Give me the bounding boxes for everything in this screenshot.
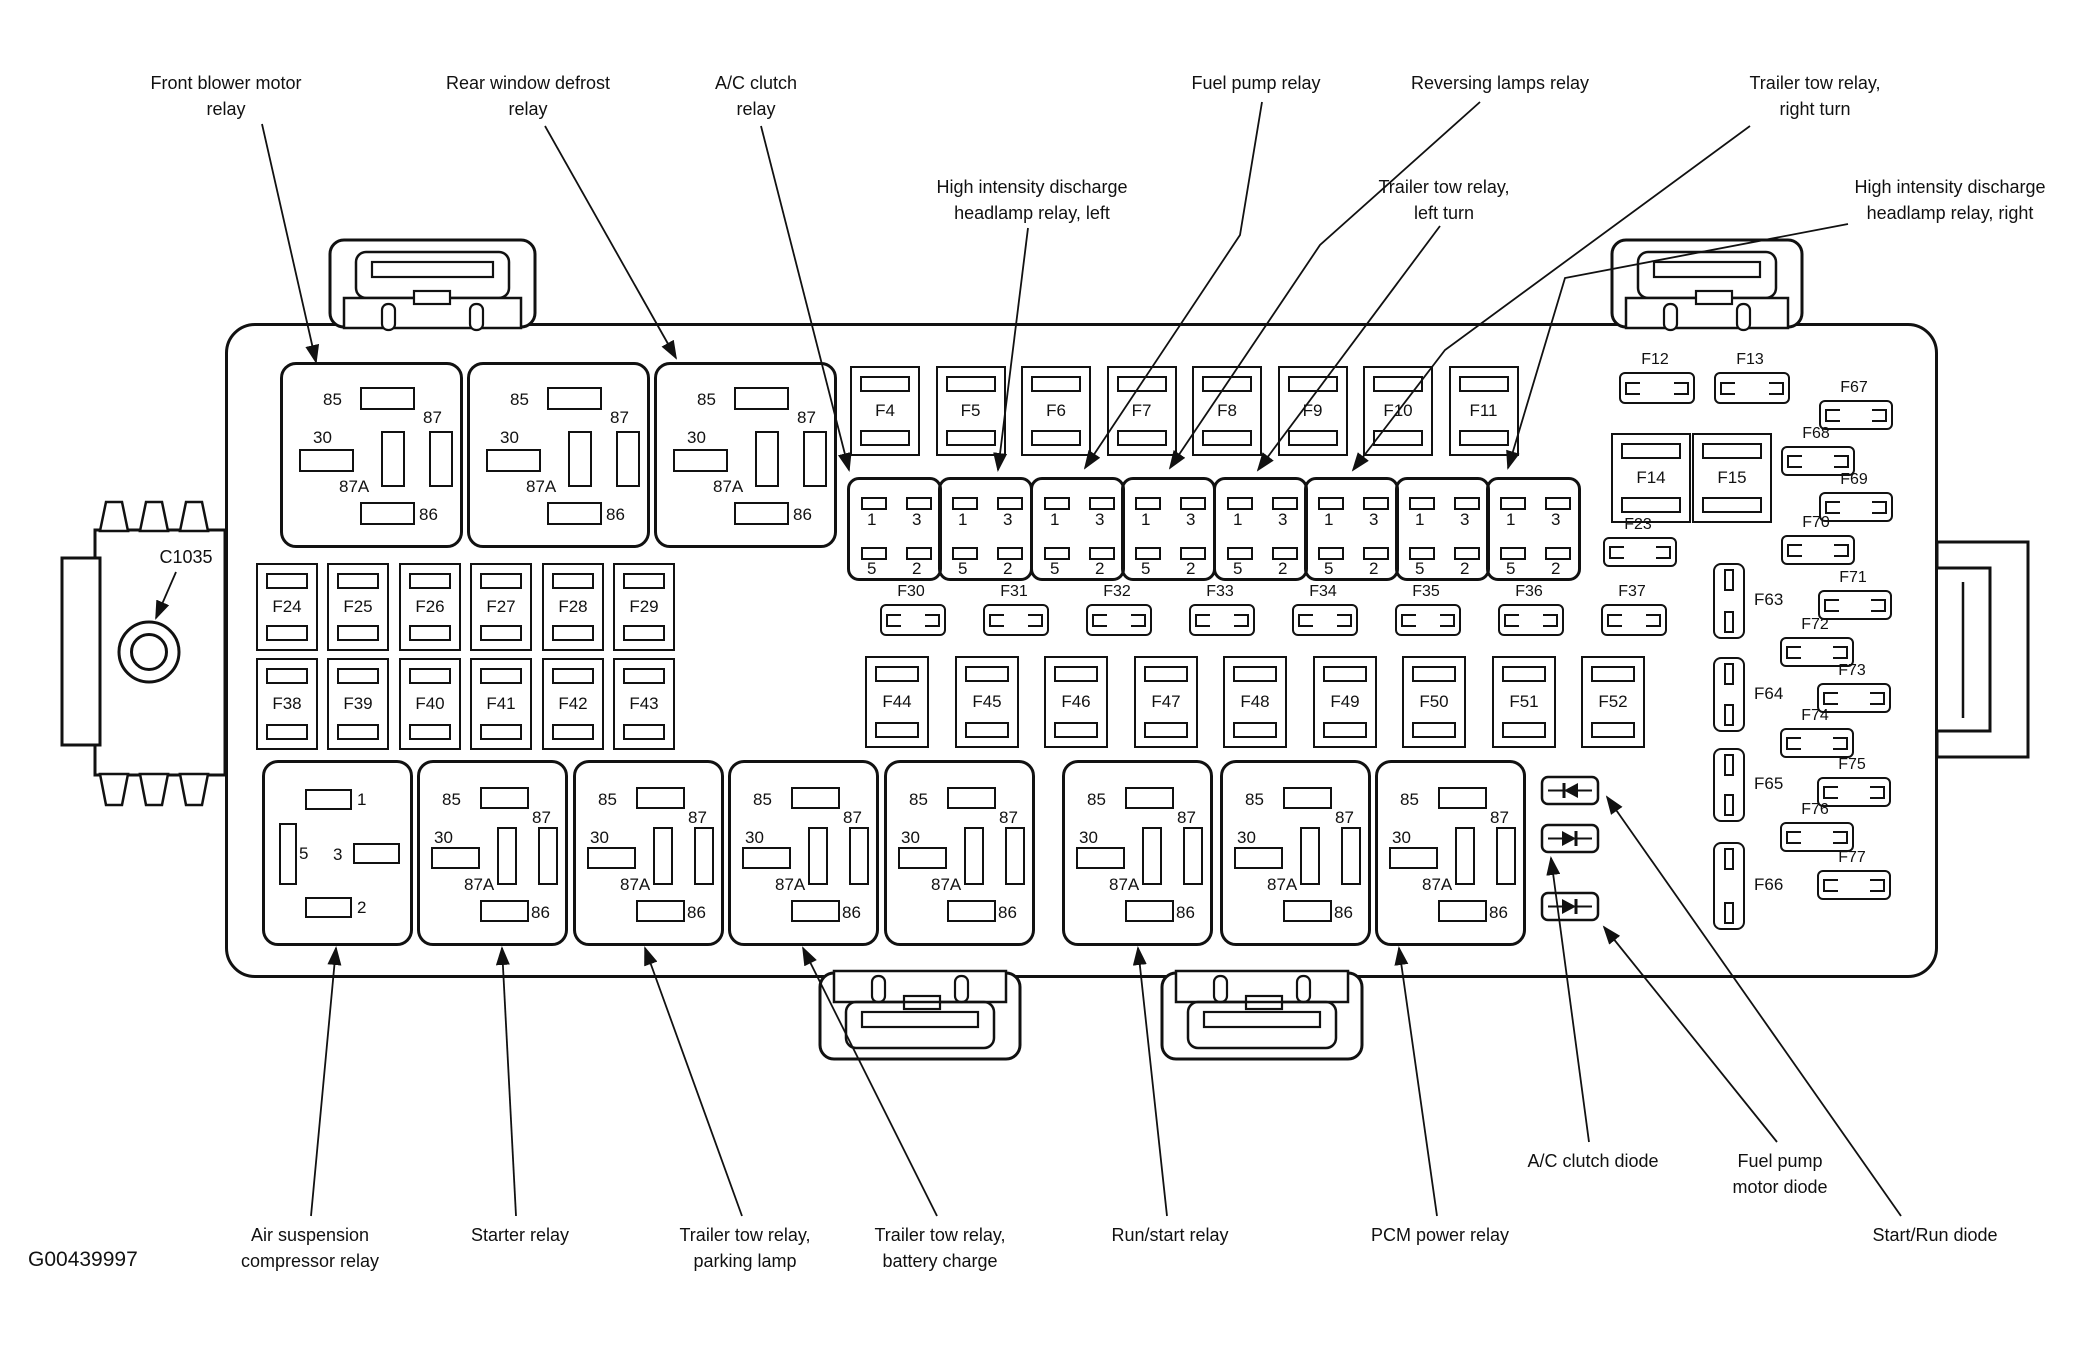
fuse-F66-label: F66 <box>1754 876 1783 893</box>
callout-fuel-pump-relay: Fuel pump relay <box>1191 70 1320 96</box>
fuse-F77-label: F77 <box>1838 850 1866 866</box>
fuse-F30-label: F30 <box>897 584 925 600</box>
fuse-F13-label: F13 <box>1736 352 1764 368</box>
callout-trailer-tow-relay-parking-lamp-line: parking lamp <box>679 1248 810 1274</box>
labels-layer: F12F13F23F30F31F32F33F34F35F36F37F63F64F… <box>0 0 2095 1348</box>
fuse-F64-label: F64 <box>1754 685 1783 702</box>
callout-trailer-tow-relay-left-turn-line: left turn <box>1378 200 1509 226</box>
callout-hid-headlamp-relay-right-line: headlamp relay, right <box>1854 200 2045 226</box>
fuse-F76-label: F76 <box>1801 802 1829 818</box>
fuse-F70-label: F70 <box>1802 515 1830 531</box>
callout-ac-clutch-relay-line: relay <box>715 96 797 122</box>
fuse-F73-label: F73 <box>1838 663 1866 679</box>
callout-starter-relay-line: Starter relay <box>471 1222 569 1248</box>
callout-trailer-tow-relay-left-turn: Trailer tow relay,left turn <box>1378 174 1509 226</box>
callout-front-blower-motor-relay-line: relay <box>150 96 301 122</box>
callout-hid-headlamp-relay-left: High intensity dischargeheadlamp relay, … <box>936 174 1127 226</box>
callout-pcm-power-relay-line: PCM power relay <box>1371 1222 1509 1248</box>
callout-air-suspension-compressor-relay-line: Air suspension <box>241 1222 379 1248</box>
callout-hid-headlamp-relay-right: High intensity dischargeheadlamp relay, … <box>1854 174 2045 226</box>
callout-pcm-power-relay: PCM power relay <box>1371 1222 1509 1248</box>
fuse-F63-label: F63 <box>1754 591 1783 608</box>
callout-ac-clutch-diode: A/C clutch diode <box>1527 1148 1658 1174</box>
fuse-F37-label: F37 <box>1618 584 1646 600</box>
callout-hid-headlamp-relay-left-line: High intensity discharge <box>936 174 1127 200</box>
callout-run-start-relay: Run/start relay <box>1111 1222 1228 1248</box>
fuse-F35-label: F35 <box>1412 584 1440 600</box>
figure-id: G00439997 <box>28 1248 138 1272</box>
callout-trailer-tow-relay-right-turn: Trailer tow relay,right turn <box>1749 70 1880 122</box>
callout-trailer-tow-relay-battery-charge-line: battery charge <box>874 1248 1005 1274</box>
callout-air-suspension-compressor-relay: Air suspensioncompressor relay <box>241 1222 379 1274</box>
fuse-F67-label: F67 <box>1840 380 1868 396</box>
callout-start-run-diode: Start/Run diode <box>1872 1222 1997 1248</box>
callout-starter-relay: Starter relay <box>471 1222 569 1248</box>
callout-fuel-pump-relay-line: Fuel pump relay <box>1191 70 1320 96</box>
fuse-F71-label: F71 <box>1839 570 1867 586</box>
callout-rear-window-defrost-relay-line: relay <box>446 96 610 122</box>
fuse-F72-label: F72 <box>1801 617 1829 633</box>
fuse-F32-label: F32 <box>1103 584 1131 600</box>
callout-trailer-tow-relay-parking-lamp-line: Trailer tow relay, <box>679 1222 810 1248</box>
callout-fuel-pump-motor-diode-line: motor diode <box>1732 1174 1827 1200</box>
callout-fuel-pump-motor-diode-line: Fuel pump <box>1732 1148 1827 1174</box>
callout-front-blower-motor-relay: Front blower motorrelay <box>150 70 301 122</box>
fuse-F34-label: F34 <box>1309 584 1337 600</box>
callout-trailer-tow-relay-right-turn-line: Trailer tow relay, <box>1749 70 1880 96</box>
fuse-F69-label: F69 <box>1840 472 1868 488</box>
callout-ac-clutch-relay: A/C clutchrelay <box>715 70 797 122</box>
callout-trailer-tow-relay-right-turn-line: right turn <box>1749 96 1880 122</box>
callout-trailer-tow-relay-parking-lamp: Trailer tow relay,parking lamp <box>679 1222 810 1274</box>
fuse-box-diagram: 85873087A8685873087A8685873087A861532858… <box>0 0 2095 1348</box>
fuse-F75-label: F75 <box>1838 757 1866 773</box>
fuse-F74-label: F74 <box>1801 708 1829 724</box>
callout-air-suspension-compressor-relay-line: compressor relay <box>241 1248 379 1274</box>
fuse-F31-label: F31 <box>1000 584 1028 600</box>
fuse-F12-label: F12 <box>1641 352 1669 368</box>
callout-reversing-lamps-relay-line: Reversing lamps relay <box>1411 70 1589 96</box>
callout-ac-clutch-diode-line: A/C clutch diode <box>1527 1148 1658 1174</box>
callout-ac-clutch-relay-line: A/C clutch <box>715 70 797 96</box>
callout-fuel-pump-motor-diode: Fuel pumpmotor diode <box>1732 1148 1827 1200</box>
callout-run-start-relay-line: Run/start relay <box>1111 1222 1228 1248</box>
callout-rear-window-defrost-relay-line: Rear window defrost <box>446 70 610 96</box>
fuse-F23-label: F23 <box>1624 517 1652 533</box>
callout-trailer-tow-relay-left-turn-line: Trailer tow relay, <box>1378 174 1509 200</box>
fuse-F33-label: F33 <box>1206 584 1234 600</box>
callout-trailer-tow-relay-battery-charge-line: Trailer tow relay, <box>874 1222 1005 1248</box>
callout-front-blower-motor-relay-line: Front blower motor <box>150 70 301 96</box>
callout-hid-headlamp-relay-right-line: High intensity discharge <box>1854 174 2045 200</box>
callout-reversing-lamps-relay: Reversing lamps relay <box>1411 70 1589 96</box>
fuse-F68-label: F68 <box>1802 426 1830 442</box>
callout-trailer-tow-relay-battery-charge: Trailer tow relay,battery charge <box>874 1222 1005 1274</box>
callout-hid-headlamp-relay-left-line: headlamp relay, left <box>936 200 1127 226</box>
callout-rear-window-defrost-relay: Rear window defrostrelay <box>446 70 610 122</box>
fuse-F36-label: F36 <box>1515 584 1543 600</box>
fuse-F65-label: F65 <box>1754 775 1783 792</box>
connector-label: C1035 <box>159 548 212 566</box>
callout-start-run-diode-line: Start/Run diode <box>1872 1222 1997 1248</box>
